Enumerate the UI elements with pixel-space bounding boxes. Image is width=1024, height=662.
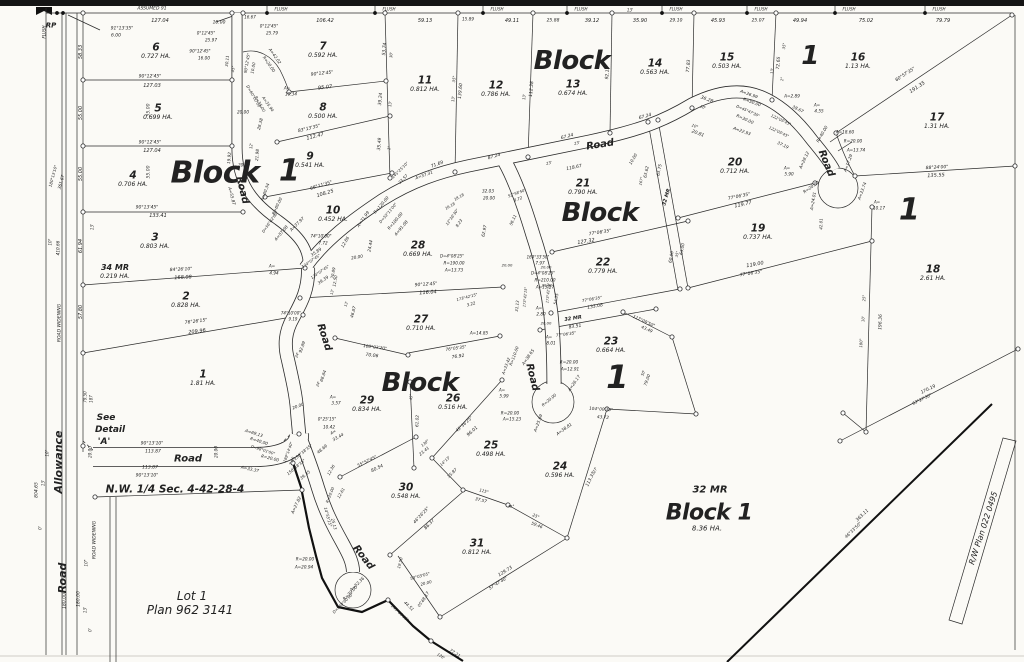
lot-number: 2 [182,291,189,303]
survey-pin-marker [81,144,85,148]
block-label: Block [562,198,641,228]
note-label: N.W. 1/4 Sec. 4-42-28-4 [106,484,245,496]
dimension-label: 113.87 [142,465,158,471]
lot-number: 31 [470,538,485,550]
dimension-label: 53.74 [381,42,388,55]
dimension-label: ROAD WIDENING [57,303,63,342]
lot-area: 1.81 HA. [190,380,216,387]
lot-number: 27 [414,314,429,326]
dimension-label: 9.19 [289,316,298,321]
dimension-label: FLUSH [41,25,46,38]
dimension-label: A=13.73 [444,267,464,272]
dimension-label: ROAD WIDENING [92,520,98,559]
dimension-label: 31.13 [514,300,520,312]
dimension-label: 90°13'10" [136,473,159,479]
lot-area: 0.727 HA. [141,53,171,60]
dimension-label: 61.02 [414,415,419,427]
dimension-label: 10" [83,559,88,566]
dimension-label: 35.90 [633,18,647,24]
dimension-label: 13' [521,94,526,100]
survey-pin-marker [461,488,465,492]
lot-number: 11 [418,75,433,87]
survey-pin-marker [1010,13,1014,17]
lot-area: 0.674 HA. [558,90,588,97]
block-label: Block [534,46,613,76]
block-label: Block 1 [666,501,753,526]
dimension-label: 58.33 [78,45,84,59]
survey-pin-marker [526,155,530,159]
dimension-label: A=2.89 [783,93,800,98]
dimension-label: 5.90 [784,171,794,176]
survey-pin-marker [406,353,410,357]
dimension-label: 0°12'45" [197,30,216,35]
lot-area: 0.779 HA. [588,268,618,275]
dimension-label: 8.36 HA. [692,524,722,532]
dimension-label: 127.04 [143,148,161,154]
survey-pin-marker [654,307,658,311]
dimension-label: 77.83 [685,59,692,72]
dimension-label: 180.00 [62,593,68,609]
dimension-label: 39.24 [377,92,384,105]
dimension-label: 7.72 [318,240,328,245]
dimension-label: A= [783,165,791,170]
survey-pin-marker [414,435,418,439]
dimension-label: A=15.23 [502,416,522,421]
survey-pin-marker [81,210,85,214]
lot-area: 0.712 HA. [720,168,750,175]
lot-number: 15 [720,52,735,64]
lot-number: 20 [728,157,743,169]
dimension-label: 30.11 [224,55,230,67]
dimension-label: A=13.74 [846,147,866,152]
dimension-label: 13' [82,607,87,613]
dimension-label: 92.15 [604,66,611,79]
lot-number: 6 [152,42,159,54]
block-label: Block [171,156,263,191]
flush-label: FLUSH [490,6,503,11]
lot-number: 23 [604,336,619,348]
survey-pin-marker [388,553,392,557]
dimension-label: 55.00 [146,165,152,178]
plan-label: Lot 1 [177,589,207,603]
lot-number: 12 [489,80,504,92]
dimension-label: 90°12'45" [189,48,210,53]
survey-pin-marker [678,287,682,291]
dimension-label: 39.12 [585,18,599,24]
dimension-label: 88°24'00" [926,164,949,171]
scan-artifacts [0,0,1024,662]
survey-pin-marker [301,313,305,317]
dimension-label: 57.80 [78,305,84,319]
lot-number: 24 [553,461,568,473]
note-label: 'A' [98,437,110,447]
survey-pin-marker [1013,164,1017,168]
lot-number: 17 [930,112,945,124]
lot-area: 0.812 HA. [462,549,492,556]
dimension-label: 13' [40,480,45,486]
dimension-label: D=4°08'25" [531,270,555,275]
dimension-label: 10° [44,449,49,456]
lot-number: 9 [306,151,313,163]
lot-area: 0.219 HA. [100,273,130,280]
found-monument-marker [61,11,64,14]
survey-pin-marker [565,536,569,540]
dimension-label: A= [535,305,543,310]
dimension-label: 16.00 [198,55,210,60]
dimension-label: A= [283,85,291,90]
block-label: 1 [801,41,819,71]
dimension-label: A= [545,334,553,339]
survey-pin-marker [838,439,842,443]
found-monument-marker [55,11,58,14]
lot-number: 21 [576,178,591,190]
lot-number: 8 [319,102,326,114]
lot-number: 18 [926,264,941,276]
lot-number: 13 [566,79,581,91]
dimension-label: 20.00 [541,264,552,269]
lot-number: 16 [851,52,866,64]
survey-pin-marker [498,334,502,338]
survey-pin-marker [670,335,674,339]
dimension-label: 180° [858,338,863,347]
dimension-label: 20.00 [87,446,92,458]
dimension-label: 25° [861,294,866,301]
dimension-label: 25.07 [752,18,765,24]
dimension-label: 106.42 [316,18,334,24]
lot-number: 3 [151,232,158,244]
dimension-label: 4.94 [269,270,279,275]
dimension-label: 74°10'00" [281,310,301,315]
dimension-label: 25.88 [547,18,560,24]
dimension-label: 135.55 [927,172,945,179]
lot-area: 0.592 HA. [308,52,338,59]
dimension-label: 43.72 [597,414,610,420]
survey-pin-marker [538,328,542,332]
dimension-label: R=20.00 [296,556,315,561]
dimension-label: 20.00 [542,282,553,287]
found-monument-marker [660,11,663,14]
lot-area: 0.596 HA. [545,472,575,479]
dimension-label: 45.93 [711,18,725,24]
survey-pin-marker [550,250,554,254]
lot-area: 0.498 HA. [476,451,506,458]
survey-pin-marker [686,219,690,223]
block-label: 1 [606,358,628,396]
survey-pin-marker [853,174,857,178]
survey-pin-marker [608,131,612,135]
survey-pin-marker [621,310,625,314]
survey-pin-marker [81,351,85,355]
dimension-label: R=20.00 [844,138,863,143]
lot-area: 0.828 HA. [171,302,201,309]
dimension-label: 2.80 [536,311,546,316]
dimension-label: A= [498,387,506,392]
dimension-label: 75.02 [859,18,873,24]
dimension-label: 13' [450,96,455,102]
survey-pin-marker [690,106,694,110]
survey-pin-marker [81,78,85,82]
road-label: Road [174,454,203,465]
dimension-label: 90°12'45" [139,140,162,146]
lot-area: 0.786 HA. [481,91,511,98]
survey-pin-marker [383,11,387,15]
found-monument-marker [923,11,926,14]
survey-pin-marker [275,140,279,144]
survey-pin-marker [549,311,553,315]
found-monument-marker [833,11,836,14]
dimension-label: 13' [627,7,633,12]
lot-area: 0.541 HA. [295,162,325,169]
dimension-label: 13' [769,68,774,74]
dimension-label: 32.03 [482,188,494,193]
dimension-label: A=12.91 [560,366,580,371]
dimension-label: R=190.00 [443,260,464,265]
found-monument-marker [265,11,268,14]
lot-number: 7 [319,41,327,53]
lot-area: 0.664 HA. [596,347,626,354]
dimension-label: 0°12'45" [260,23,279,28]
lot-area: 2.61 HA. [920,275,946,282]
dimension-label: A= [873,199,881,204]
lot-area: 1.31 HA. [924,123,950,130]
dimension-label: 10° [47,238,52,245]
dimension-label: 4.55 [814,108,824,113]
dimension-label: 84°26'10" [170,266,193,273]
dimension-label: 20.00 [502,262,513,267]
dimension-label: 10.17 [873,205,885,210]
survey-pin-marker [676,216,680,220]
dimension-label: ASSUMED 91 [136,6,166,12]
found-monument-marker [745,11,748,14]
flush-label: FLUSH [574,6,587,11]
dimension-label: 55.00 [78,106,84,120]
survey-pin-marker [429,639,433,643]
lot-area: 0.563 HA. [640,69,670,76]
lot-area: 1.13 HA. [845,63,871,70]
lot-number: 30 [399,482,414,494]
dimension-label: 49.11 [505,18,519,24]
survey-pin-marker [386,598,390,602]
block-label: 1 [899,193,919,228]
note-label: Detail [95,425,126,435]
survey-pin-marker [694,412,698,416]
dimension-label: A=18.60 [835,129,855,134]
lot-area: 0.669 HA. [403,251,433,258]
survey-pin-marker [656,118,660,122]
lot-number: 34 MR [101,263,129,272]
dimension-label: 55.00 [78,167,84,181]
lot-area: 0.500 HA. [308,113,338,120]
lot-area: 0.710 HA. [406,325,436,332]
dimension-label: 20.00 [541,320,552,325]
dimension-label: 180.00 [76,591,82,607]
lot-area: 0.834 HA. [352,406,382,413]
survey-pin-marker [692,11,696,15]
dimension-label: 79.50 [82,391,87,403]
survey-pin-marker [841,411,845,415]
dimension-label: 10.00 [213,20,226,26]
dimension-label: 19.92 [226,151,232,164]
dimension-label: 45° [508,503,515,508]
survey-pin-marker [81,11,85,15]
survey-pin-marker [388,114,392,118]
lot-area: 0.803 HA. [140,243,170,250]
dimension-label: 0' [37,526,42,530]
dimension-label: 6.00 [111,33,121,39]
survey-pin-marker [241,210,245,214]
dimension-label: 168.08 [174,274,192,281]
lot-number: 1 [199,369,206,381]
dimension-label: 20.00 [483,195,495,200]
dimension-label: 21.98 [254,148,260,161]
dimension-label: 127.03 [143,83,161,89]
survey-pin-marker [1016,347,1020,351]
dimension-label: 72.65 [775,56,782,69]
survey-pin-marker [770,98,774,102]
dimension-label: 13' [387,101,392,107]
dimension-label: A=14.85 [469,330,489,335]
survey-pin-marker [864,430,868,434]
dimension-label: A= [329,394,337,399]
lot-number: 26 [446,393,461,405]
lot-number: 4 [128,170,136,182]
found-monument-marker [481,11,484,14]
flush-label: FLUSH [932,6,945,11]
road-label: Allowance [52,430,65,495]
flush-label: FLUSH [669,6,682,11]
dimension-label: A= [813,102,821,107]
flush-label: FLUSH [382,6,395,11]
lot-area: 0.790 HA. [568,189,598,196]
lot-number: 28 [411,240,426,252]
dimension-label: 59.13 [418,18,432,24]
dimension-label: 79.79 [936,18,950,24]
dimension-label: 20.00 [237,109,249,114]
dimension-label: 196.36 [877,314,884,330]
survey-pin-marker [453,170,457,174]
dimension-label: 0' [87,628,92,632]
found-monument-marker [565,11,568,14]
dimension-label: 169°33'50" [527,254,550,259]
survey-pin-marker [81,444,85,448]
lot-area: 0.516 HA. [438,404,468,411]
dimension-label: 0°25'15" [318,416,337,421]
note-label: 32 MR [692,485,727,496]
lot-area: 0.812 HA. [410,86,440,93]
dimension-label: 29.10 [670,18,683,24]
flush-label: FLUSH [754,6,767,11]
survey-pin-marker [870,239,874,243]
dimension-label: 90°13'45" [136,205,159,211]
dimension-label: R=20.00 [501,410,520,415]
survey-pin-marker [81,283,85,287]
dimension-label: 1° [779,77,784,82]
survey-pin-marker [297,432,301,436]
survey-pin-marker [646,120,650,124]
dimension-label: 187 [88,395,93,403]
dimension-label: R=20.00 [560,359,579,364]
survey-pin-marker [93,495,97,499]
survey-pin-marker [298,296,302,300]
dimension-label: 61.94 [78,239,84,253]
survey-pin-marker [300,488,304,492]
lot-area: 0.699 HA. [143,114,173,121]
survey-pin-marker [230,144,234,148]
note-label: See [97,413,116,423]
dimension-label: 15.89 [462,16,474,21]
dimension-label: 13' [89,224,94,230]
survey-pin-marker [456,11,460,15]
dimension-label: 42.01 [818,218,823,230]
dimension-label: 25.79 [266,30,278,35]
dimension-label: 35.49 [376,137,383,150]
found-monument-marker [373,11,376,14]
survey-pin-marker [230,78,234,82]
lot-number: 5 [154,103,161,115]
dimension-label: 127.04 [151,18,169,24]
dimension-label: D=4°08'25" [440,253,464,258]
dimension-label: 113.87 [145,449,161,455]
dimension-label: A=20.94 [294,564,314,569]
lot-area: 0.452 HA. [318,216,348,223]
survey-pin-marker [430,456,434,460]
dimension-label: 74°10'00" [310,233,331,238]
dimension-label: 91°13'35" [111,26,134,32]
dimension-label: 35" [781,42,787,49]
block-label: 1 [279,154,299,189]
lot-area: 0.706 HA. [118,181,148,188]
lot-number: 19 [751,223,766,235]
survey-pin-marker [438,615,442,619]
dimension-label: 10.34 [285,91,297,96]
lot-number: 25 [484,440,499,452]
survey-pin-marker [531,11,535,15]
dimension-label: 35° [451,75,457,82]
survey-pin-marker [686,286,690,290]
lot-number: 14 [648,58,663,70]
lot-number: 29 [360,395,375,407]
lot-number: 10 [326,205,341,217]
survey-pin-marker [333,336,337,340]
flush-label: FLUSH [274,6,287,11]
survey-pin-marker [230,11,234,15]
road-label: Road [56,562,69,593]
dimension-label: 30' [388,52,393,58]
survey-pin-marker [774,11,778,15]
lot-number: 22 [596,257,611,269]
dimension-label: 116.04 [419,289,437,296]
survey-plat-map: Block1Block1Block1Block132 MRBlock 18.36… [0,0,1024,662]
survey-pin-marker [384,79,388,83]
survey-pin-marker [500,378,504,382]
plan-label: Plan 962 3141 [147,603,234,617]
dimension-label: 5.99 [499,393,509,398]
lot-area: 0.548 HA. [391,493,421,500]
dimension-label: 10' [860,316,865,322]
dimension-label: 410.66 [55,240,60,255]
dimension-label: 20.00 [238,162,250,167]
dimension-label: A= [268,263,276,268]
dimension-label: 3.57 [331,400,341,405]
lot-area: 0.503 HA. [712,63,742,70]
dimension-label: 133.41 [149,213,167,219]
survey-pin-marker [338,475,342,479]
dimension-label: 12' [248,143,253,149]
dimension-label: 20.00 [213,446,218,458]
dimension-label: 45° [230,65,236,72]
dimension-label: 45° [409,394,413,401]
dimension-label: 90°12'45" [139,74,162,80]
